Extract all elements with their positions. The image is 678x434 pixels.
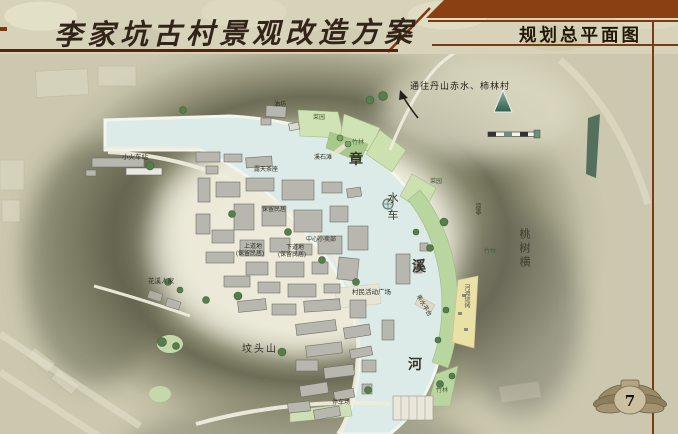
- label-route-note: 通往丹山赤水、柿林村: [410, 82, 510, 91]
- label-oil-mill: 油坊: [274, 102, 286, 108]
- label-waterwheel: 水车: [386, 192, 397, 226]
- header: 李家坑古村景观改造方案 规划总平面图: [0, 0, 678, 54]
- label-beach-bbq: 河滩烧烤: [463, 284, 469, 308]
- label-bamboo-east: 竹林: [484, 249, 496, 255]
- label-preserved-houses: 保留民居: [262, 207, 286, 213]
- label-taoshuheng: 桃树横: [518, 228, 529, 270]
- label-pavilion: 凉亭: [474, 203, 480, 215]
- slide-title: 李家坑古村景观改造方案: [54, 10, 414, 53]
- slide: 李家坑古村景观改造方案 规划总平面图: [0, 0, 678, 434]
- label-village-plaza: 村民活动广场: [352, 290, 391, 297]
- master-plan-map: 通往丹山赤水、柿林村 章 水车 溪 河 桃树横 坟头山 花溪人家 小火车站 油坊…: [0, 54, 678, 434]
- label-fentou-hill: 坟头山: [242, 345, 278, 355]
- label-river-xi: 溪: [412, 260, 426, 274]
- header-left-tick: [0, 27, 7, 31]
- label-upper-courtyard: 上道地: [244, 244, 262, 250]
- label-river-zhang: 章: [349, 153, 363, 167]
- label-lower-courtyard: 下道地: [286, 245, 304, 251]
- label-store: 中心小卖部: [306, 237, 336, 243]
- label-train-station: 小火车站: [122, 155, 148, 162]
- parking-lot: [393, 396, 433, 420]
- label-huaxi-homes: 花溪人家: [148, 279, 174, 286]
- label-lower-courtyard-note: (保留民居): [278, 252, 306, 258]
- label-upper-courtyard-note: (保留民居): [236, 251, 264, 257]
- label-river-he: 河: [408, 358, 422, 372]
- section-title: 规划总平面图: [519, 22, 642, 47]
- label-parking: 停车场: [332, 400, 350, 406]
- label-garden-east: 菜园: [430, 179, 442, 185]
- page-number: 7: [625, 392, 635, 410]
- map-artwork: [0, 54, 678, 434]
- label-creek-stones: 溪石滩: [314, 155, 332, 161]
- label-bamboo-bottom: 竹林: [436, 388, 448, 394]
- label-open-air-teahouse: 露天茶座: [254, 167, 278, 173]
- label-garden-top: 菜园: [313, 115, 325, 121]
- page-number-badge: 7: [590, 370, 670, 426]
- label-bamboo-top: 竹林: [352, 140, 364, 146]
